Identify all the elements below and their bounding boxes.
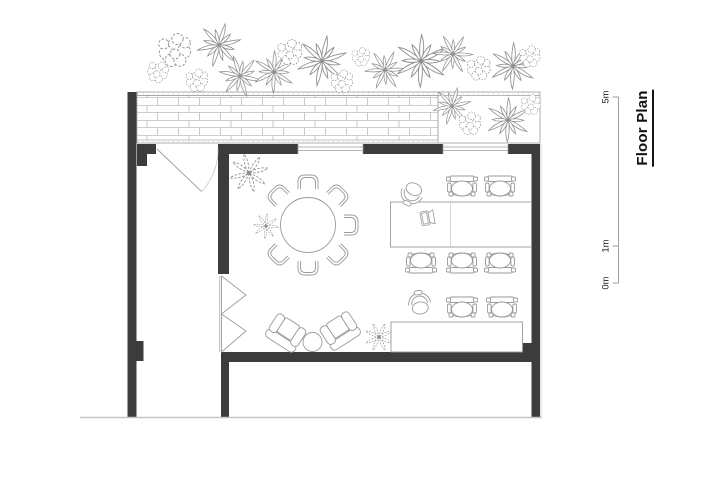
wall-segment-left-wall-column xyxy=(137,341,144,361)
cluster-plant-icon xyxy=(159,33,191,66)
furniture-layer xyxy=(264,175,531,354)
dining-chair-icon xyxy=(266,243,290,267)
office-chair-icon xyxy=(447,253,478,273)
dining-chair-icon xyxy=(326,183,350,207)
garden-plants-layer xyxy=(144,18,540,350)
door-leaf xyxy=(157,149,202,192)
laptop-icon xyxy=(420,210,435,226)
cluster-plant-icon xyxy=(467,56,490,80)
wall-segment-bottom-wall xyxy=(229,352,523,362)
office-chair-icon xyxy=(485,176,516,196)
wall-segment-top-wall-c xyxy=(363,144,443,154)
desk-1 xyxy=(391,202,532,247)
scale-label-5m: 5m xyxy=(601,90,612,103)
wall-segment-top-wall-b xyxy=(218,144,298,154)
xplant-plant-icon xyxy=(228,152,269,193)
lounge-chair-icon xyxy=(264,313,307,354)
side-table xyxy=(303,333,322,352)
office-chair-icon xyxy=(447,176,478,196)
bifold-door-panel xyxy=(222,276,247,314)
office-chair-icon xyxy=(447,297,478,317)
door-swing-arc xyxy=(202,149,218,192)
bifold-door-panel xyxy=(222,314,247,352)
office-chair-icon xyxy=(487,297,518,317)
dining-chair-icon xyxy=(326,243,350,267)
lounge-chair-icon xyxy=(319,311,362,352)
wall-segment-interior-wall-top xyxy=(218,144,229,274)
wall-segment-bottom-right-column xyxy=(522,343,532,362)
wall-segment-left-wall xyxy=(128,92,137,417)
wall-segment-top-wall-a xyxy=(137,144,156,154)
xplant-plant-icon xyxy=(366,324,392,350)
dining-chair-icon xyxy=(298,261,318,275)
plan-title: Floor Plan xyxy=(634,89,654,166)
wall-segment-entry-jamb xyxy=(137,154,147,166)
floor-plan-canvas: Floor Plan 5m 1m 0m xyxy=(0,0,712,480)
cluster-plant-icon xyxy=(520,46,540,67)
swivel-chair-icon xyxy=(407,289,432,315)
scale-label-0m: 0m xyxy=(601,276,612,289)
office-chair-icon xyxy=(406,253,437,273)
xplant-plant-icon xyxy=(250,210,282,242)
dining-chair-icon xyxy=(266,183,290,207)
cluster-plant-icon xyxy=(352,47,370,66)
wall-segment-interior-wall-bottom xyxy=(221,352,229,417)
scale-bar xyxy=(613,97,619,283)
dining-chair-icon xyxy=(298,175,318,189)
desk-2 xyxy=(391,322,523,352)
round-table xyxy=(281,198,336,253)
brick-hatch xyxy=(137,96,438,141)
office-chair-icon xyxy=(485,253,516,273)
cluster-plant-icon xyxy=(186,69,208,92)
wall-segment-right-wall xyxy=(532,144,541,418)
dining-chair-icon xyxy=(344,215,358,235)
scale-label-1m: 1m xyxy=(601,239,612,252)
frond-plant-icon xyxy=(397,35,445,88)
